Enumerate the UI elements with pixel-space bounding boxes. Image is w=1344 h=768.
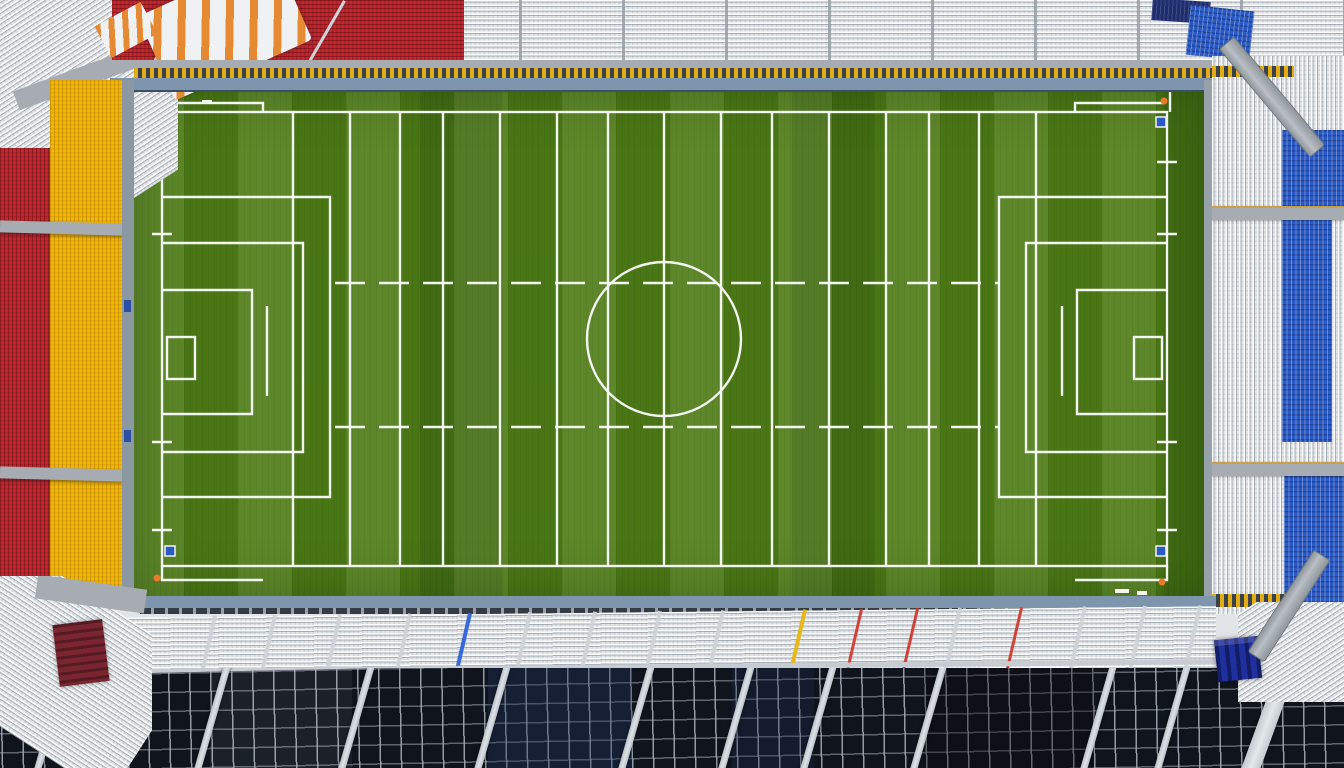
stadium-aerial-photo (0, 0, 1344, 768)
east-cross-aisle-upper (1212, 206, 1344, 220)
north-walkway-grey (110, 60, 1212, 68)
pitch-grass (130, 84, 1210, 602)
aisle-rail (1182, 605, 1202, 676)
north-walkway-blue (110, 78, 1212, 92)
bench-mark-2 (1137, 591, 1147, 595)
right-box-inner (1077, 290, 1167, 414)
southwest-corner (0, 576, 152, 768)
corner-square-bl (165, 546, 175, 556)
corner-L-bottom-left (162, 566, 263, 580)
aisle-rail (1067, 606, 1087, 677)
terrace-tint (210, 668, 352, 768)
corner-square-br (1156, 546, 1166, 556)
aisle-rail (1127, 606, 1147, 677)
east-blue-column (1282, 214, 1332, 442)
left-box-mid (162, 243, 303, 452)
corner-L-top-right (1075, 92, 1170, 112)
east-cross-aisle-lower (1212, 462, 1344, 476)
top-line-marker (202, 100, 212, 103)
bench-mark-1 (1115, 589, 1129, 593)
left-box-inner (162, 290, 252, 414)
west-stand-yellow-seats (50, 80, 124, 604)
blue-gate (124, 430, 131, 442)
corner-square-tr (1156, 117, 1166, 127)
corner-flag-bl (154, 575, 161, 582)
west-pitchside-rail (122, 80, 134, 604)
right-box-mid (1026, 243, 1167, 452)
terrace-tint (924, 668, 1094, 768)
terrace-tint (488, 668, 632, 768)
blue-gate (124, 300, 131, 312)
corner-flag-tr (1161, 98, 1168, 105)
west-stand-red-seats (0, 148, 52, 604)
left-goal-box (167, 337, 195, 379)
corner-L-bottom-right (1075, 566, 1167, 580)
east-pitchside-rail (1204, 80, 1212, 610)
south-terrace (0, 668, 1344, 768)
corner-flag-br (1159, 579, 1166, 586)
red-stair-structure (52, 619, 109, 687)
right-goal-box (1134, 337, 1162, 379)
pitch-markings (130, 84, 1210, 602)
north-yellow-barrier (134, 68, 1292, 78)
